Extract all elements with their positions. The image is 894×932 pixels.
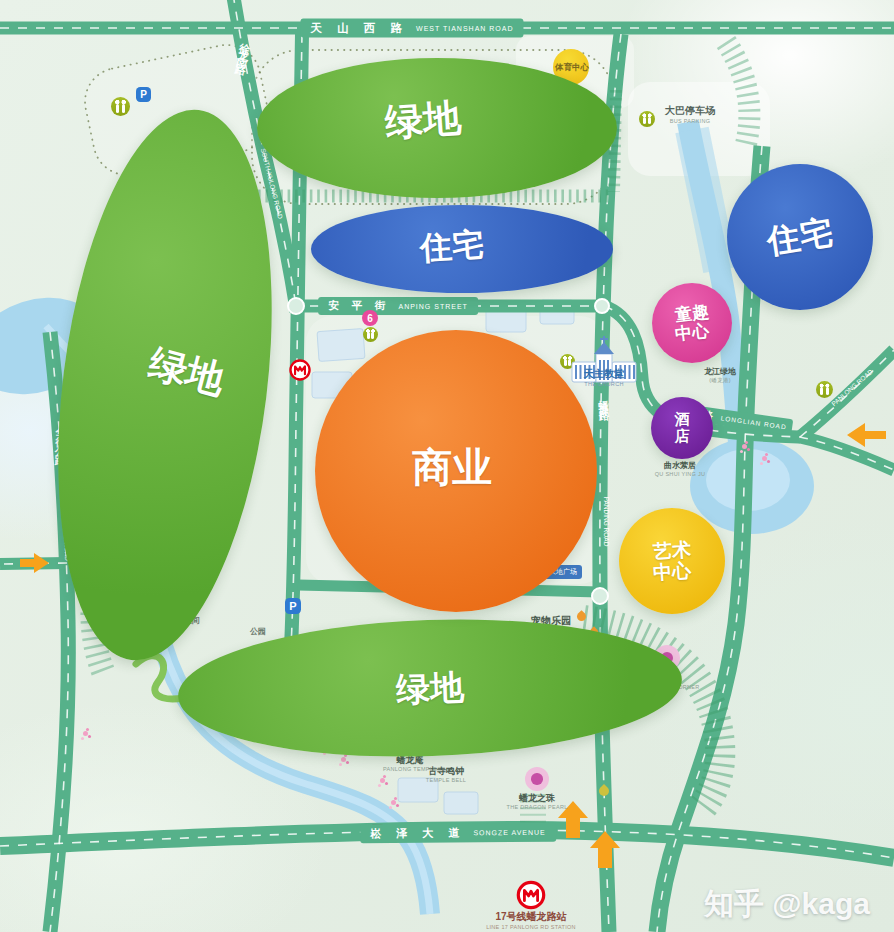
poi-sports: 体育中心 — [555, 62, 589, 73]
zone-residential-mid: 住宅 — [311, 205, 613, 293]
poi-bus-parking: 大巴停车场 BUS PARKING — [665, 105, 715, 124]
parking-icon: P — [285, 598, 301, 614]
zone-kids-center: 童趣 中心 — [652, 283, 732, 363]
marker-6: 6 — [362, 310, 378, 326]
blossom-icon — [83, 731, 88, 736]
arrow-right-icon — [20, 553, 49, 573]
road-longlian-east — [800, 437, 894, 470]
watermark: 知乎 @kaga — [704, 884, 870, 925]
zone-green-top: 绿地 — [257, 58, 617, 198]
road-label-panding-en: PANDING ROAD — [603, 476, 610, 568]
zone-residential-right: 住宅 — [727, 164, 873, 310]
zone-commercial: 商业 — [315, 330, 597, 612]
planning-map: 天 山 西 路 WEST TIANSHAN ROAD 安 平 街 ANPING … — [0, 0, 894, 932]
poi-longjiang: 龙江绿地 (蟠龙港) — [704, 367, 736, 384]
poi-ring-icon — [525, 767, 549, 791]
road-label-tianshan: 天 山 西 路 WEST TIANSHAN ROAD — [300, 19, 523, 38]
restroom-icon — [639, 111, 655, 127]
metro-icon — [288, 358, 312, 382]
parking-icon: P — [136, 87, 151, 102]
zone-art-center: 艺术 中心 — [619, 508, 725, 614]
zone-hotel: 酒 店 — [651, 397, 713, 459]
poi-park: 公园 — [250, 627, 266, 637]
restroom-icon — [363, 327, 378, 342]
blossom-icon — [380, 778, 385, 783]
station-label: 17号线蟠龙路站 LINE 17 PANLONG RD STATION — [486, 911, 576, 930]
restroom-icon — [816, 381, 833, 398]
poi-panlongan: 蟠龙庵 PANLONG TEMPLE — [383, 755, 437, 773]
poi-church: 天主教堂 THE CHURCH — [584, 368, 624, 387]
blossom-icon — [341, 757, 346, 762]
road-label-anping: 安 平 街 ANPING STREET — [318, 297, 478, 315]
poi-qushui: 曲水萦居 QU SHUI YING JU — [655, 461, 706, 478]
poi-pearl: 蟠龙之珠 THE DRAGON PEARL — [506, 793, 567, 811]
road-label-panding: 蟠鼎路 — [597, 392, 612, 407]
blossom-icon — [391, 800, 396, 805]
lotus-icon — [742, 444, 747, 449]
arrow-left-icon — [847, 423, 886, 447]
lotus-icon — [762, 456, 767, 461]
road-label-songze: 崧 泽 大 道 SONGZE AVENUE — [360, 823, 556, 844]
restroom-icon — [111, 97, 130, 116]
metro-station-logo — [515, 879, 547, 911]
